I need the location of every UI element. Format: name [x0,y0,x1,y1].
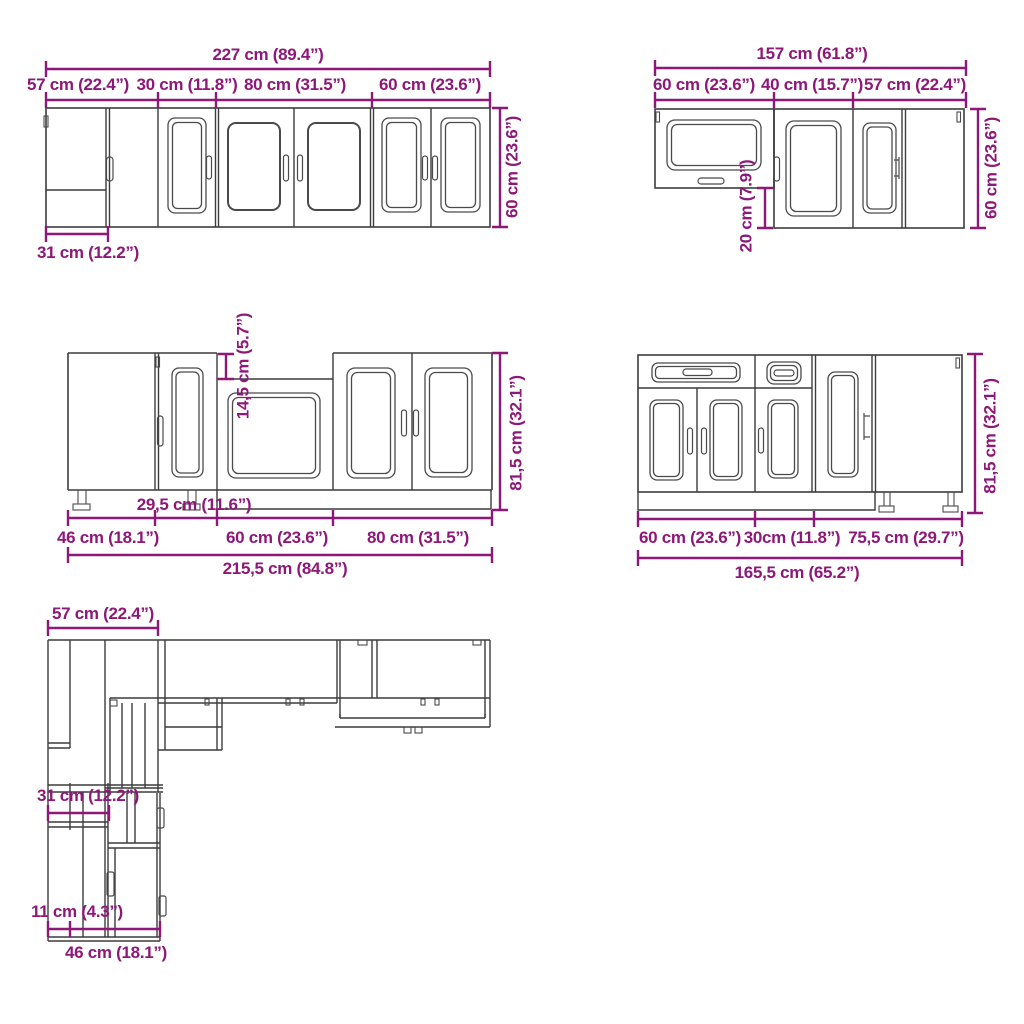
segment-width-label: 60 cm (23.6”) [639,528,741,547]
mid-width-label: 31 cm (12.2”) [37,786,139,805]
height-label: 81,5 cm (32.1”) [981,378,1000,494]
door-handle-icon [414,410,419,436]
door-handle-icon [207,156,212,179]
door-handle-icon [702,428,707,454]
base-cabinet-row-front-view: 14,5 cm (5.7”) 81,5 cm (32.1”) 29,5 cm (… [57,313,525,578]
flip-door-handle-icon [698,178,724,184]
total-width-label: 157 cm (61.8”) [756,44,867,63]
segment-width-label: 30 cm (11.8”) [137,75,238,94]
door-handle-icon [688,428,693,454]
cabinet-dimension-drawing: 227 cm (89.4”) 57 cm (22.4”) 30 cm (11.8… [0,0,1024,1024]
door-handle-icon [284,155,289,181]
recess-height-label: 14,5 cm (5.7”) [234,313,253,419]
segment-width-label: 80 cm (31.5”) [244,75,346,94]
dimension-annotations: 227 cm (89.4”) 57 cm (22.4”) 30 cm (11.8… [27,45,521,262]
cabinet-leg-icon [879,492,958,512]
door-handle-icon [423,156,428,180]
height-label: 60 cm (23.6”) [982,117,1001,219]
cabinet-line-art [655,109,964,228]
height-label: 81,5 cm (32.1”) [507,375,526,491]
segment-width-label: 57 cm (22.4”) [27,75,129,94]
plinth [638,492,875,510]
wall-corner-cabinet-front-view: 157 cm (61.8”) 60 cm (23.6”) 40 cm (15.7… [653,44,1000,252]
corner-width-label: 31 cm (12.2”) [37,243,139,262]
drawer-handle-icon [683,369,712,376]
total-width-label: 165,5 cm (65.2”) [735,563,860,582]
segment-width-label: 57 cm (22.4”) [864,75,966,94]
door-handle-icon [774,157,780,181]
segment-width-label: 30cm (11.8”) [744,528,841,547]
lower-width-label: 46 cm (18.1”) [65,943,167,962]
door-handle-icon [864,413,870,440]
cabinet-line-art [638,355,962,512]
door-handle-icon [433,156,438,180]
segment-width-label: 75,5 cm (29.7”) [848,528,964,547]
cabinet-line-art [68,353,492,510]
top-width-label: 57 cm (22.4”) [52,604,154,623]
base-corner-cabinet-front-view: 81,5 cm (32.1”) 60 cm (23.6”) 30cm (11.8… [638,354,1000,582]
segment-width-label: 60 cm (23.6”) [379,75,481,94]
dimension-annotations: 157 cm (61.8”) 60 cm (23.6”) 40 cm (15.7… [653,44,1000,252]
dimension-sheet: 227 cm (89.4”) 57 cm (22.4”) 30 cm (11.8… [0,0,1024,1024]
drawer-handle-icon [774,370,794,376]
hinge-icon [656,112,660,122]
segment-width-label: 40 cm (15.7”) [761,75,863,94]
inner-width-label: 29,5 cm (11.6”) [137,495,252,514]
segment-width-label: 60 cm (23.6”) [226,528,328,547]
hinge-icon [156,357,160,367]
door-handle-icon [402,410,407,436]
segment-width-label: 60 cm (23.6”) [653,75,755,94]
hinge-icon [956,358,960,368]
hinge-icon [957,112,961,122]
fitting-marks [110,699,439,733]
plinth [217,490,491,509]
height-label: 60 cm (23.6”) [503,116,522,218]
dimension-annotations: 57 cm (22.4”) 31 cm (12.2”) 11 cm (4.3”)… [31,604,167,962]
small-width-label: 11 cm (4.3”) [31,902,123,921]
door-handle-icon [298,155,303,181]
door-handle-icon [759,428,764,453]
wall-cabinet-row-front-view: 227 cm (89.4”) 57 cm (22.4”) 30 cm (11.8… [27,45,521,262]
segment-width-label: 46 cm (18.1”) [57,528,159,547]
segment-width-label: 80 cm (31.5”) [367,528,469,547]
total-width-label: 227 cm (89.4”) [212,45,323,64]
floor-plan-top-view: 57 cm (22.4”) 31 cm (12.2”) 11 cm (4.3”)… [31,604,490,962]
cabinet-line-art [44,108,490,227]
total-width-label: 215,5 cm (84.8”) [223,559,348,578]
offset-height-label: 20 cm (7.9”) [737,160,756,253]
